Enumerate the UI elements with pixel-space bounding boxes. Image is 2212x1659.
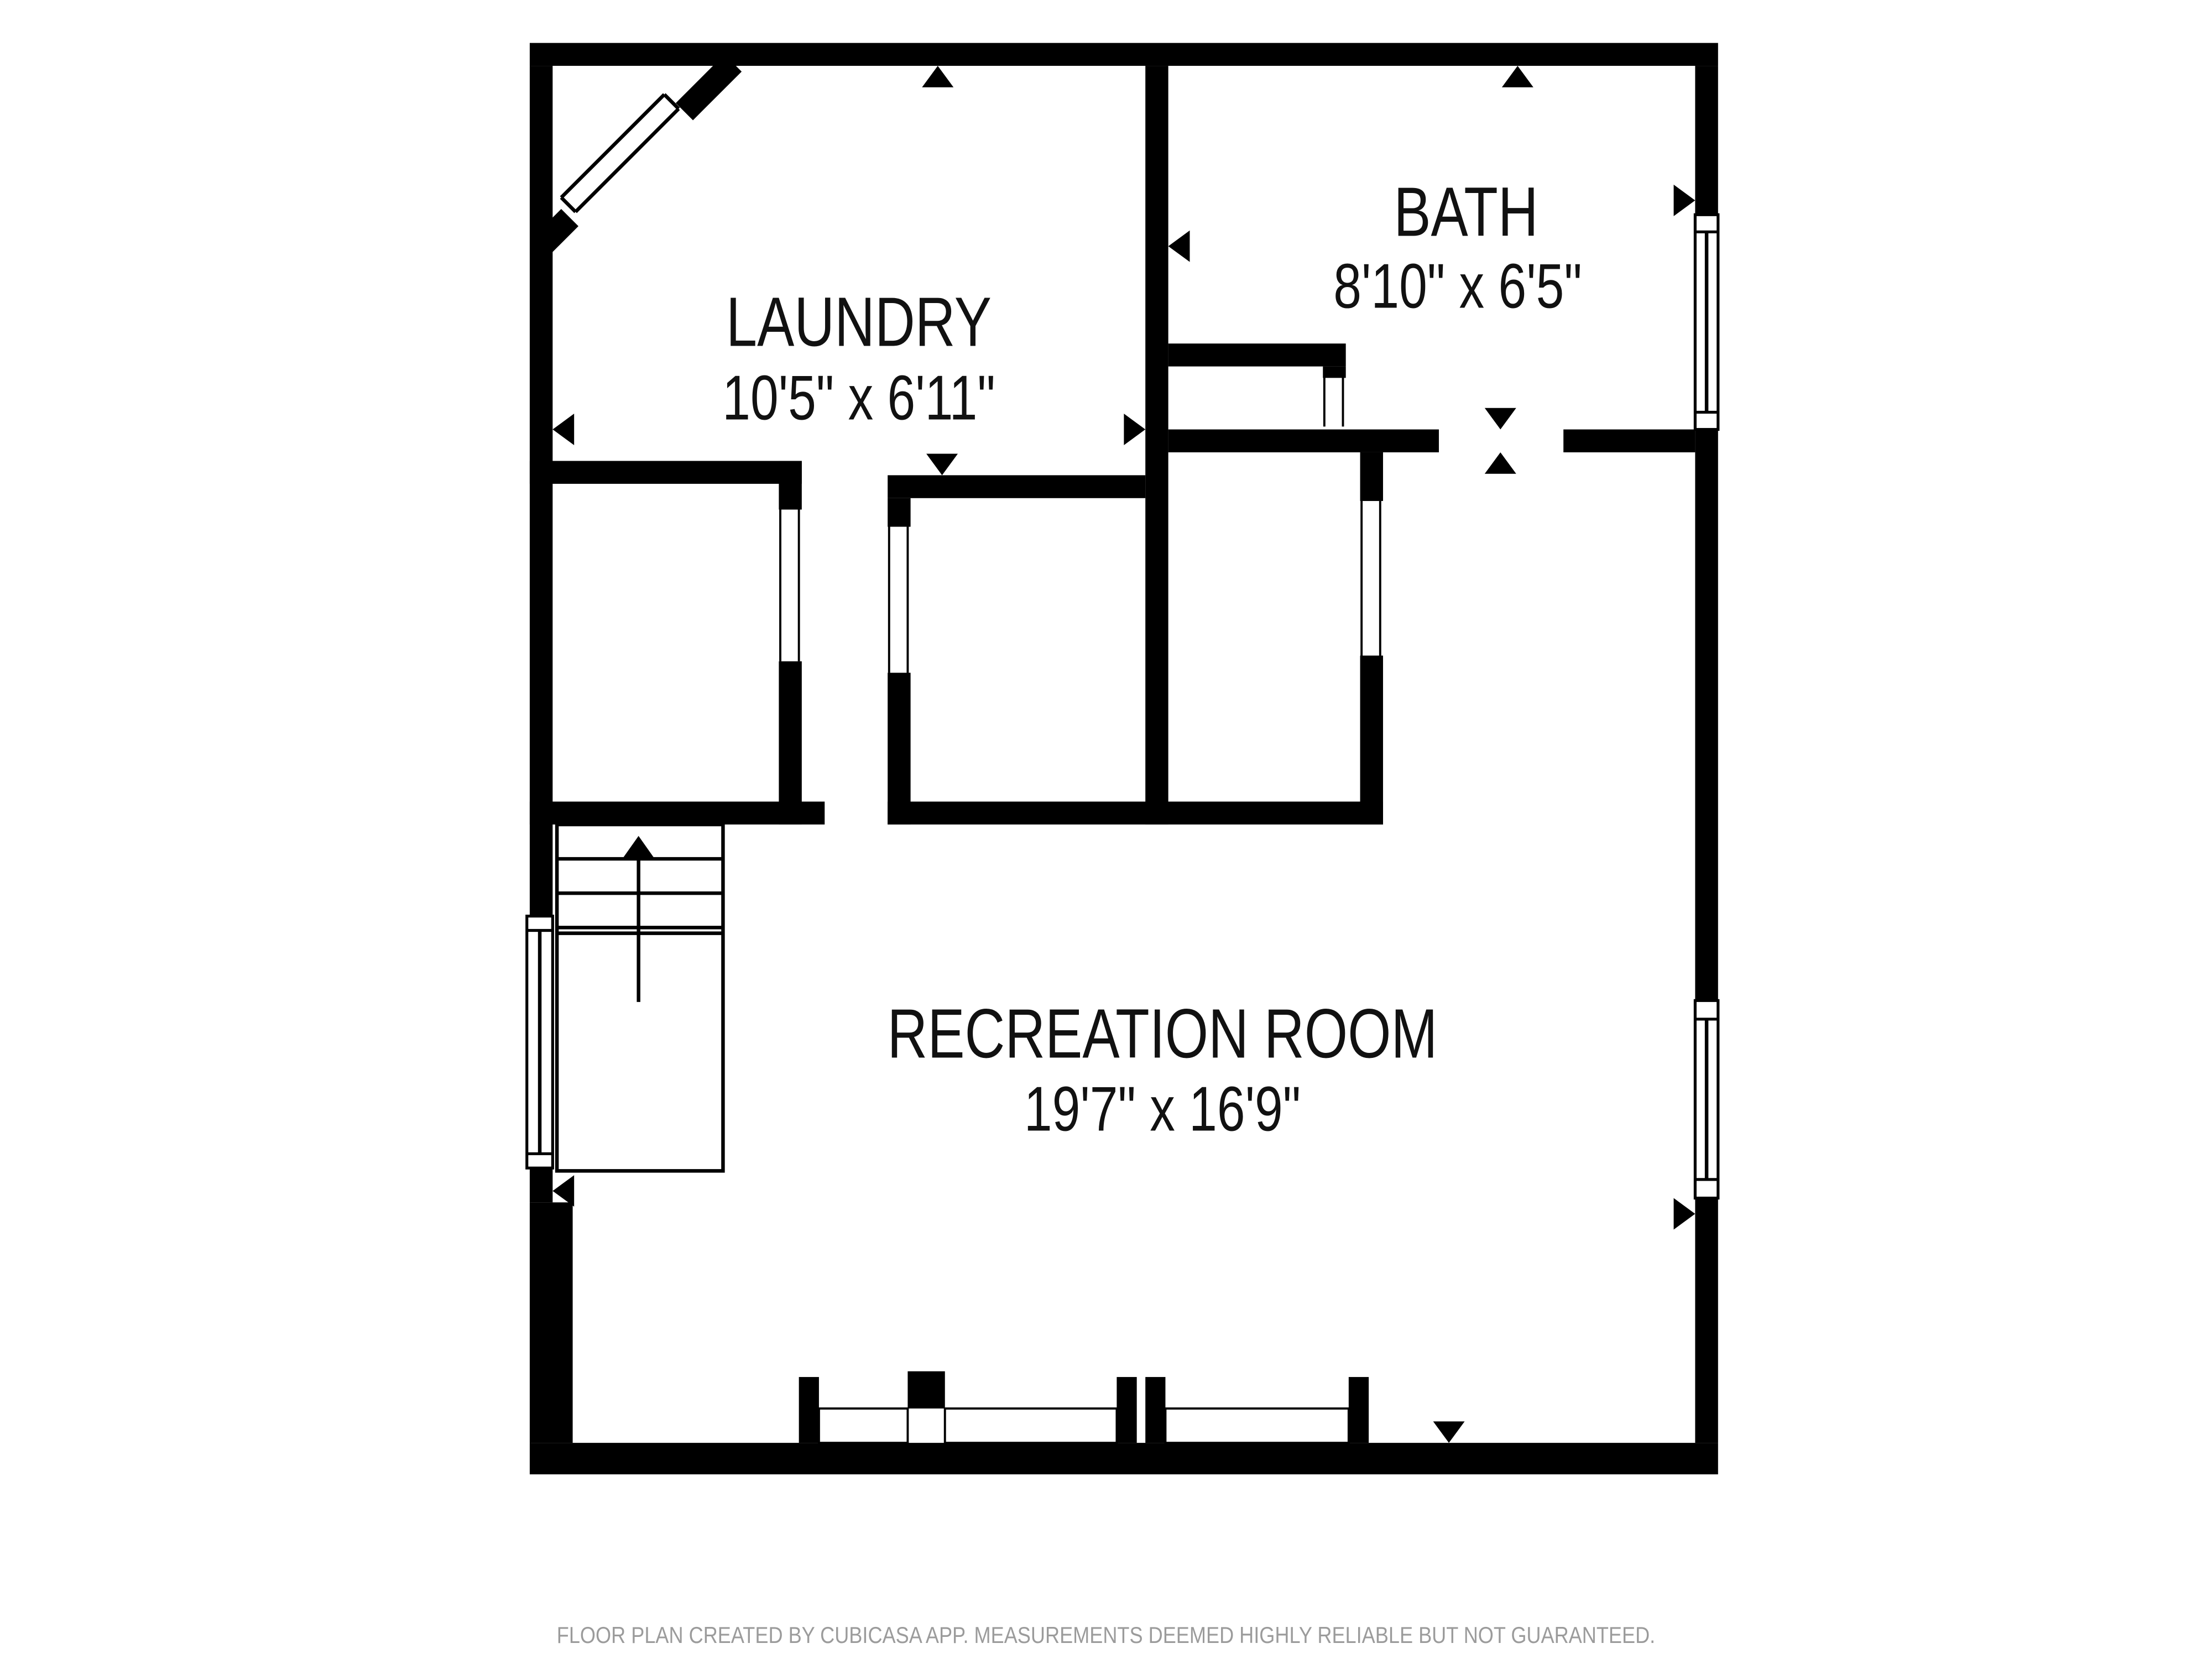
diagonal-corner-door-leaf xyxy=(561,95,664,197)
bottom-window-stub-1 xyxy=(799,1377,819,1443)
exterior-wall-bottom xyxy=(530,1443,1718,1474)
opening-arrow-bath-down xyxy=(1485,408,1516,430)
dimension-arrow-recreation-left xyxy=(552,1175,574,1207)
center-rooms-bottom-wall xyxy=(888,802,1383,825)
diagonal-corner-door-leaf xyxy=(664,95,679,109)
bath-bottom-wall-right xyxy=(1563,430,1695,452)
diagonal-corner-door-stub xyxy=(685,63,733,112)
laundry-closet-right-wall-a xyxy=(779,461,801,509)
bottom-window-mullion xyxy=(907,1371,945,1408)
diagonal-corner-door-leaf xyxy=(576,109,679,212)
laundry-closet-top-wall xyxy=(530,461,802,483)
exterior-wall-top xyxy=(530,43,1718,66)
recreation-room-dimensions: 19'7" x 16'9" xyxy=(1024,1073,1301,1146)
left-room-top-wall xyxy=(888,475,1145,498)
dimension-arrow-bath-right xyxy=(1674,185,1695,216)
laundry-closet-bottom-wall xyxy=(530,802,825,825)
laundry-label: LAUNDRY xyxy=(726,282,992,362)
recreation-room-label: RECREATION ROOM xyxy=(888,994,1438,1074)
bottom-window-stub-2 xyxy=(1117,1377,1136,1443)
bath-bottom-wall-left xyxy=(1168,430,1439,452)
dimension-arrow-recreation-right xyxy=(1674,1198,1695,1230)
bottom-window-stub-3 xyxy=(1145,1377,1165,1443)
diagonal-corner-door-leaf xyxy=(561,197,576,212)
bath-dimensions: 8'10" x 6'5" xyxy=(1333,250,1582,322)
dimension-arrow-recreation-down xyxy=(1433,1421,1465,1443)
bath-closet-top-wall xyxy=(1168,343,1346,366)
opening-arrow-recreation-up xyxy=(1485,452,1516,474)
bottom-window-slot-1 xyxy=(819,1408,908,1443)
dimension-arrow-laundry-left xyxy=(552,414,574,445)
dimension-arrow-laundry-up xyxy=(922,66,953,87)
dimension-arrow-laundry-right xyxy=(1124,414,1145,445)
floor-plan-drawing xyxy=(0,0,2212,1659)
exterior-wall-left-lower xyxy=(530,1202,573,1443)
floor-plan-page: LAUNDRY 10'5" x 6'11" BATH 8'10" x 6'5" … xyxy=(0,0,2212,1659)
divider-laundry-bath xyxy=(1145,66,1168,825)
footer-disclaimer: FLOOR PLAN CREATED BY CUBICASA APP. MEAS… xyxy=(557,1622,1655,1648)
laundry-closet-right-wall-b xyxy=(779,661,801,825)
dimension-arrow-bath-left xyxy=(1168,231,1190,262)
dimension-arrow-left-room-down xyxy=(926,454,958,476)
right-room-right-wall-b xyxy=(1360,656,1383,825)
dimension-arrow-bath-up xyxy=(1502,66,1533,87)
staircase-direction-arrow-head xyxy=(622,836,656,860)
left-room-left-wall-a xyxy=(888,498,910,527)
bath-label: BATH xyxy=(1394,172,1538,252)
laundry-dimensions: 10'5" x 6'11" xyxy=(722,362,995,434)
bottom-window-slot-3 xyxy=(1165,1408,1348,1443)
bottom-window-stub-4 xyxy=(1349,1377,1369,1443)
right-room-right-wall-a xyxy=(1360,452,1383,501)
bottom-window-slot-2 xyxy=(945,1408,1117,1443)
